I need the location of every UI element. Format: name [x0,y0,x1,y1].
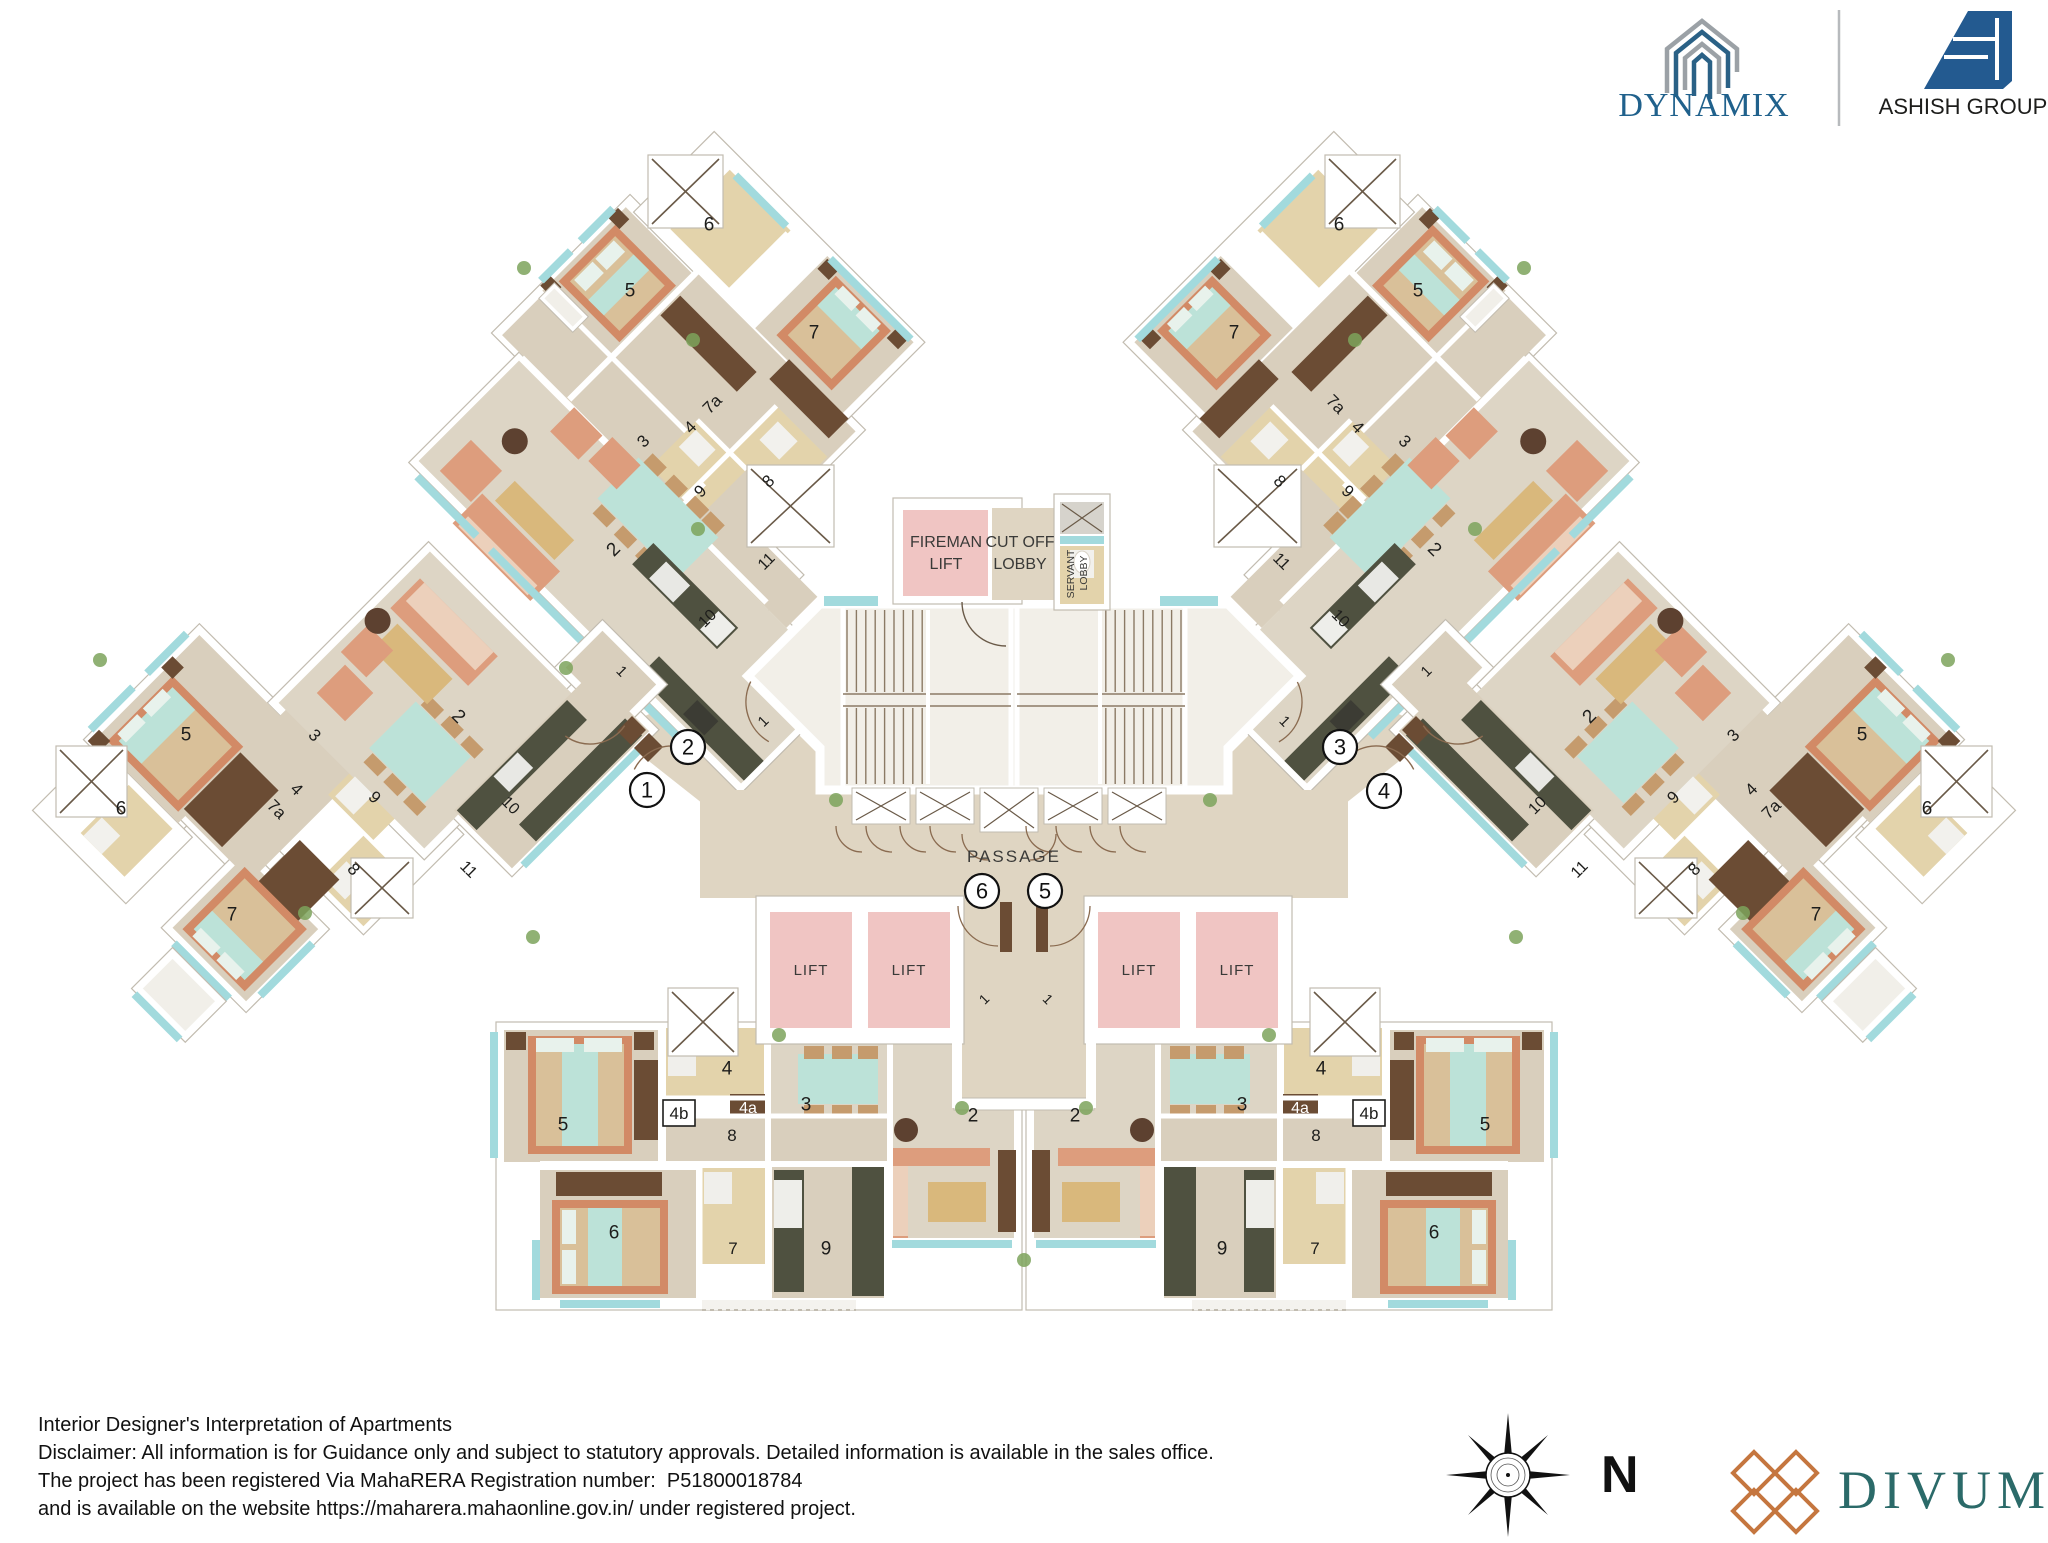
svg-text:Interior Designer's Interpreta: Interior Designer's Interpretation of Ap… [38,1414,452,1436]
svg-text:Disclaimer: All information is: Disclaimer: All information is for Guida… [38,1442,1214,1464]
svg-text:The project has been registere: The project has been registered Via Maha… [38,1470,803,1492]
svg-text:ASHISH GROUP: ASHISH GROUP [1879,94,2048,119]
svg-text:N: N [1601,1446,1639,1504]
svg-text:DYNAMIX: DYNAMIX [1618,87,1789,124]
svg-text:and is available on the websit: and is available on the website https://… [38,1498,856,1520]
svg-text:DIVUM: DIVUM [1838,1460,2048,1520]
